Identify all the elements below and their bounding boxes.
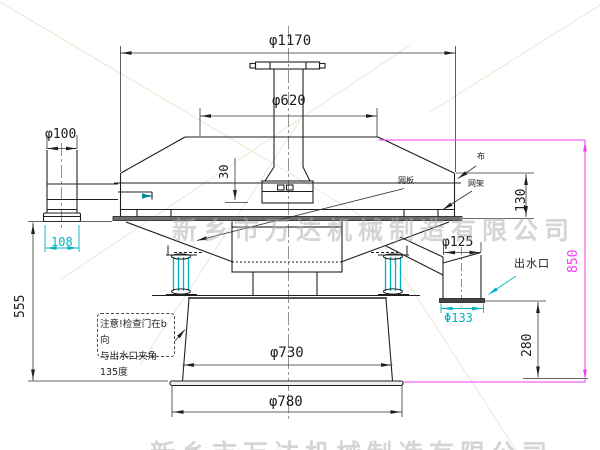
outlet-leader: [489, 276, 517, 295]
dim-total-height: 850: [567, 250, 580, 273]
note-leader: [175, 330, 185, 342]
base-skirt-left: [183, 299, 190, 381]
dim-base: φ780: [269, 395, 303, 409]
side-inlet-pipe: [44, 150, 153, 222]
cover-slope-left: [121, 137, 185, 173]
engineering-drawing: φ1170 φ620 φ100 108 30 130 555 850 280 φ…: [0, 0, 600, 450]
base-stand: [152, 296, 420, 386]
cover-slope-right: [378, 137, 454, 173]
mesh-cloth-label: 布: [477, 153, 485, 161]
watermark-bottom: 新乡市万达机械制造有限公司: [150, 434, 553, 450]
note-line-2: 与出水口夹角135度: [100, 349, 172, 381]
dim-outlet-flange: Φ133: [444, 312, 473, 324]
note-line-1: 注意!检查门在b向: [100, 317, 172, 349]
dim-base-top: φ730: [270, 346, 304, 360]
base-skirt-right: [386, 299, 393, 381]
feed-flange: [256, 62, 320, 69]
outlet-duct-bottom: [386, 246, 443, 275]
mesh-frame-label: 网架: [468, 180, 484, 188]
dim-cover: φ620: [272, 94, 306, 108]
base-flange: [170, 381, 403, 386]
note-box: 注意!检查门在b向 与出水口夹角135度: [97, 313, 175, 357]
dim-left-height: 555: [14, 295, 27, 318]
dim-inlet: φ100: [45, 128, 76, 141]
outlet-flange: [440, 299, 485, 303]
base-top-plate: [188, 297, 387, 299]
dim-top-flange: φ1170: [269, 34, 311, 48]
dim-30: 30: [218, 165, 230, 179]
outlet-label: 出水口: [514, 258, 550, 269]
dim-outlet-height: 280: [521, 334, 534, 357]
label-leaders: [175, 166, 476, 341]
mesh-plate-label: 网板: [398, 177, 414, 185]
dim-deck-height: 130: [515, 189, 528, 212]
inlet-flange: [44, 213, 81, 222]
watermark: 新乡市万达机械制造有限公司: [172, 211, 575, 247]
dim-inlet-flange: 108: [51, 236, 73, 248]
